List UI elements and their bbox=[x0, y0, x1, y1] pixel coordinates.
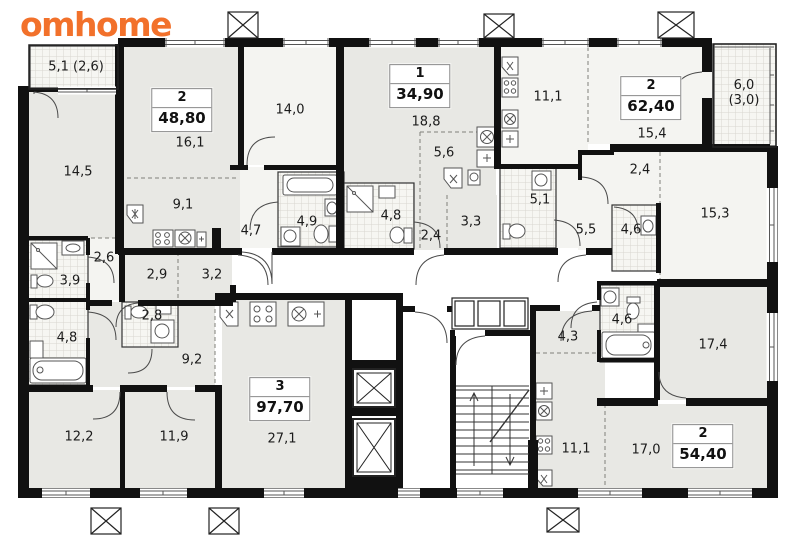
apartment-badge-62-40[interactable]: 2 62,40 bbox=[620, 76, 681, 120]
room-area-label: 2,8 bbox=[142, 309, 163, 324]
room-area-label: 2,4 bbox=[421, 229, 442, 244]
apartment-rooms-count: 2 bbox=[152, 89, 211, 108]
apartment-area: 97,70 bbox=[250, 397, 309, 420]
apartment-area: 48,80 bbox=[152, 108, 211, 131]
room-area-label: 16,1 bbox=[176, 136, 205, 151]
apartment-rooms-count: 1 bbox=[390, 65, 449, 84]
room-area-label: 4,7 bbox=[241, 224, 262, 239]
wardrobe-icon bbox=[452, 298, 528, 329]
logo[interactable]: omhome bbox=[20, 8, 171, 41]
room-area-label: 5,1 bbox=[530, 193, 551, 208]
room-area-label: 5,5 bbox=[576, 223, 597, 238]
apartment-rooms-count: 2 bbox=[621, 77, 680, 96]
room-area-label: 17,0 bbox=[632, 443, 661, 458]
apartment-area: 54,40 bbox=[673, 444, 732, 467]
apartment-badge-34-90[interactable]: 1 34,90 bbox=[389, 64, 450, 108]
room-area-label: 2,9 bbox=[147, 268, 168, 283]
room-area-label: 18,8 bbox=[412, 115, 441, 130]
apartment-badge-48-80[interactable]: 2 48,80 bbox=[151, 88, 212, 132]
room-area-label: 5,6 bbox=[434, 146, 455, 161]
room-area-label: 3,2 bbox=[202, 268, 223, 283]
room-area-label: 4,6 bbox=[612, 313, 633, 328]
elevator-icon bbox=[353, 369, 395, 407]
apartment-badge-54-40[interactable]: 2 54,40 bbox=[672, 424, 733, 468]
room-area-label: 5,1 (2,6) bbox=[48, 60, 104, 75]
room-area-label: 4,8 bbox=[381, 209, 402, 224]
room-area-label: 15,4 bbox=[638, 127, 667, 142]
room-area-label: 4,8 bbox=[57, 331, 78, 346]
room-area-label: 2,4 bbox=[630, 163, 651, 178]
room-area-label: 9,1 bbox=[173, 198, 194, 213]
room-area-label: 11,1 bbox=[562, 442, 591, 457]
room-area-label: 6,0 (3,0) bbox=[719, 79, 769, 109]
apartment-rooms-count: 3 bbox=[250, 378, 309, 397]
room-area-label: 15,3 bbox=[701, 207, 730, 222]
room-area-label: 3,3 bbox=[461, 215, 482, 230]
room-area-label: 12,2 bbox=[65, 430, 94, 445]
room-area-label: 14,0 bbox=[276, 103, 305, 118]
apartment-area: 34,90 bbox=[390, 84, 449, 107]
room-area-label: 14,5 bbox=[64, 165, 93, 180]
room-area-label: 4,9 bbox=[297, 215, 318, 230]
room-area-label: 2,6 bbox=[94, 251, 115, 266]
elevator-icon bbox=[353, 419, 395, 476]
room-area-label: 9,2 bbox=[182, 353, 203, 368]
room-area-label: 11,9 bbox=[160, 430, 189, 445]
floorplan-page: omhome 5,1 (2,6) 14,5 16,1 9,1 14,0 4,7 … bbox=[0, 0, 800, 546]
room-area-label: 3,9 bbox=[60, 274, 81, 289]
apartment-area: 62,40 bbox=[621, 96, 680, 119]
apartment-rooms-count: 2 bbox=[673, 425, 732, 444]
room-area-label: 27,1 bbox=[268, 432, 297, 447]
apartment-badge-97-70[interactable]: 3 97,70 bbox=[249, 377, 310, 421]
room-area-label: 4,3 bbox=[558, 330, 579, 345]
room-area-label: 17,4 bbox=[699, 338, 728, 353]
room-area-label: 4,6 bbox=[621, 223, 642, 238]
room-area-label: 11,1 bbox=[534, 90, 563, 105]
